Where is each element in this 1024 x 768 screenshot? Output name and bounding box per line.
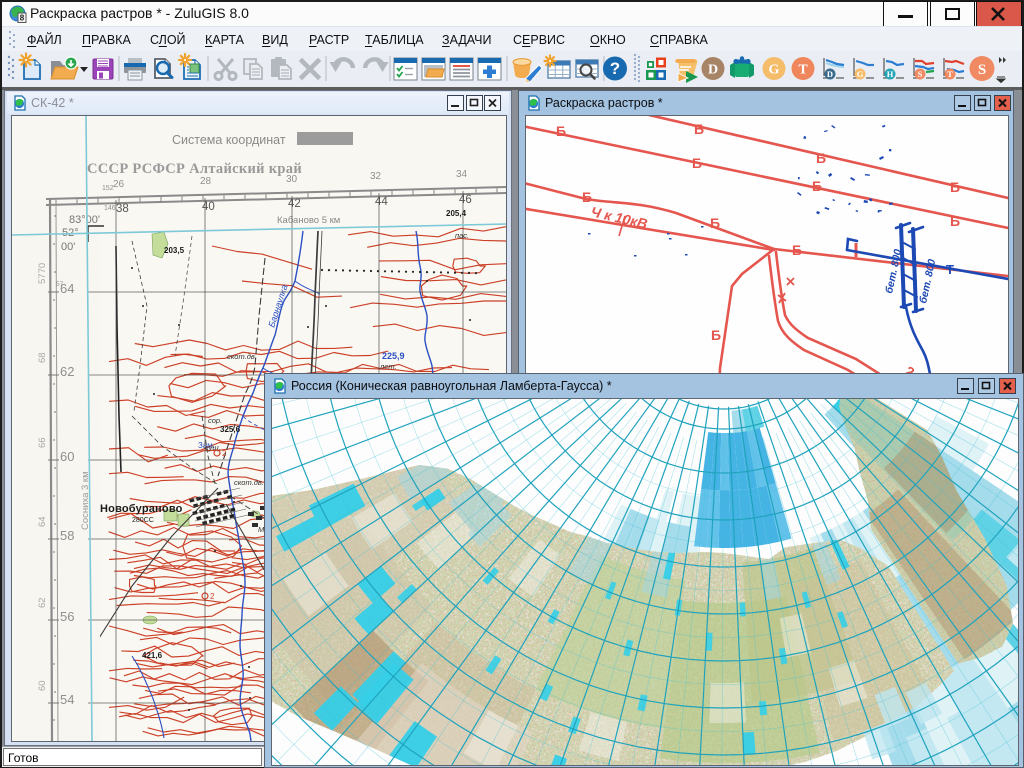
svg-text:H: H bbox=[887, 69, 894, 79]
svg-text:58: 58 bbox=[60, 528, 74, 543]
svg-text:66: 66 bbox=[37, 437, 48, 448]
svg-text:5770: 5770 bbox=[37, 263, 48, 284]
svg-text:30: 30 bbox=[286, 174, 298, 185]
svg-text:S: S bbox=[978, 62, 986, 78]
svg-text:64: 64 bbox=[37, 516, 48, 527]
svg-text:СССР РСФСР Алтайский край: СССР РСФСР Алтайский край bbox=[87, 161, 302, 177]
svg-text:62: 62 bbox=[60, 364, 74, 379]
svg-text:пас.: пас. bbox=[455, 231, 469, 240]
svg-text:Т: Т bbox=[946, 262, 954, 277]
svg-text:Кабаново 5 км: Кабаново 5 км bbox=[277, 215, 340, 226]
svg-text:Б: Б bbox=[950, 179, 960, 195]
svg-text:56: 56 bbox=[60, 609, 74, 624]
svg-text:Система координат: Система координат bbox=[172, 133, 286, 147]
svg-text:57: 57 bbox=[56, 281, 64, 288]
svg-text:G: G bbox=[769, 63, 780, 78]
svg-text:Новобураново: Новобураново bbox=[100, 503, 183, 515]
svg-text:T: T bbox=[947, 69, 953, 79]
svg-text:G: G bbox=[857, 69, 864, 79]
svg-text:лет.: лет. bbox=[379, 362, 397, 371]
svg-text:62: 62 bbox=[37, 597, 48, 608]
svg-text:скот.дв.: скот.дв. bbox=[234, 478, 264, 487]
svg-text:Б: Б bbox=[710, 215, 720, 231]
svg-text:26: 26 bbox=[113, 179, 125, 190]
svg-text:46: 46 bbox=[459, 194, 472, 206]
svg-text:Б: Б bbox=[692, 155, 702, 171]
svg-text:Б: Б bbox=[582, 189, 592, 205]
svg-text:сор.: сор. bbox=[208, 416, 222, 425]
svg-text:205,4: 205,4 bbox=[446, 209, 467, 218]
svg-text:Б: Б bbox=[694, 121, 704, 137]
svg-text:Б: Б bbox=[711, 327, 721, 343]
svg-text:Б: Б bbox=[792, 242, 802, 258]
svg-text:68: 68 bbox=[37, 352, 48, 363]
svg-text:54: 54 bbox=[60, 692, 74, 707]
svg-text:325,6: 325,6 bbox=[220, 425, 241, 434]
svg-text:Б: Б bbox=[816, 150, 826, 166]
svg-text:38: 38 bbox=[116, 203, 129, 215]
svg-text:D: D bbox=[708, 63, 718, 78]
svg-text:?: ? bbox=[610, 59, 620, 78]
svg-text:8: 8 bbox=[20, 14, 25, 23]
svg-text:S: S bbox=[918, 69, 923, 79]
svg-text:Б: Б bbox=[812, 178, 822, 194]
svg-text:D: D bbox=[827, 69, 833, 79]
svg-text:32: 32 bbox=[370, 171, 382, 182]
svg-text:83°00': 83°00' bbox=[69, 214, 100, 226]
svg-text:203,5: 203,5 bbox=[164, 246, 185, 255]
svg-text:225,9: 225,9 bbox=[382, 351, 405, 361]
svg-text:скот.дв.: скот.дв. bbox=[227, 352, 257, 361]
svg-text:Б: Б bbox=[950, 213, 960, 229]
svg-text:60: 60 bbox=[37, 680, 48, 691]
svg-text:34: 34 bbox=[456, 169, 468, 180]
svg-text:42: 42 bbox=[288, 198, 301, 210]
svg-text:146: 146 bbox=[104, 205, 116, 212]
svg-text:44: 44 bbox=[375, 196, 388, 208]
svg-text:T: T bbox=[798, 63, 808, 78]
svg-text:00': 00' bbox=[61, 241, 75, 253]
svg-text:2: 2 bbox=[222, 449, 227, 458]
svg-text:Б: Б bbox=[556, 123, 566, 139]
svg-text:60: 60 bbox=[60, 449, 74, 464]
svg-text:2: 2 bbox=[210, 592, 215, 601]
svg-text:28: 28 bbox=[200, 176, 212, 187]
svg-text:421,6: 421,6 bbox=[142, 651, 163, 660]
svg-text:40: 40 bbox=[202, 201, 215, 213]
svg-text:280СС: 280СС bbox=[132, 517, 154, 524]
